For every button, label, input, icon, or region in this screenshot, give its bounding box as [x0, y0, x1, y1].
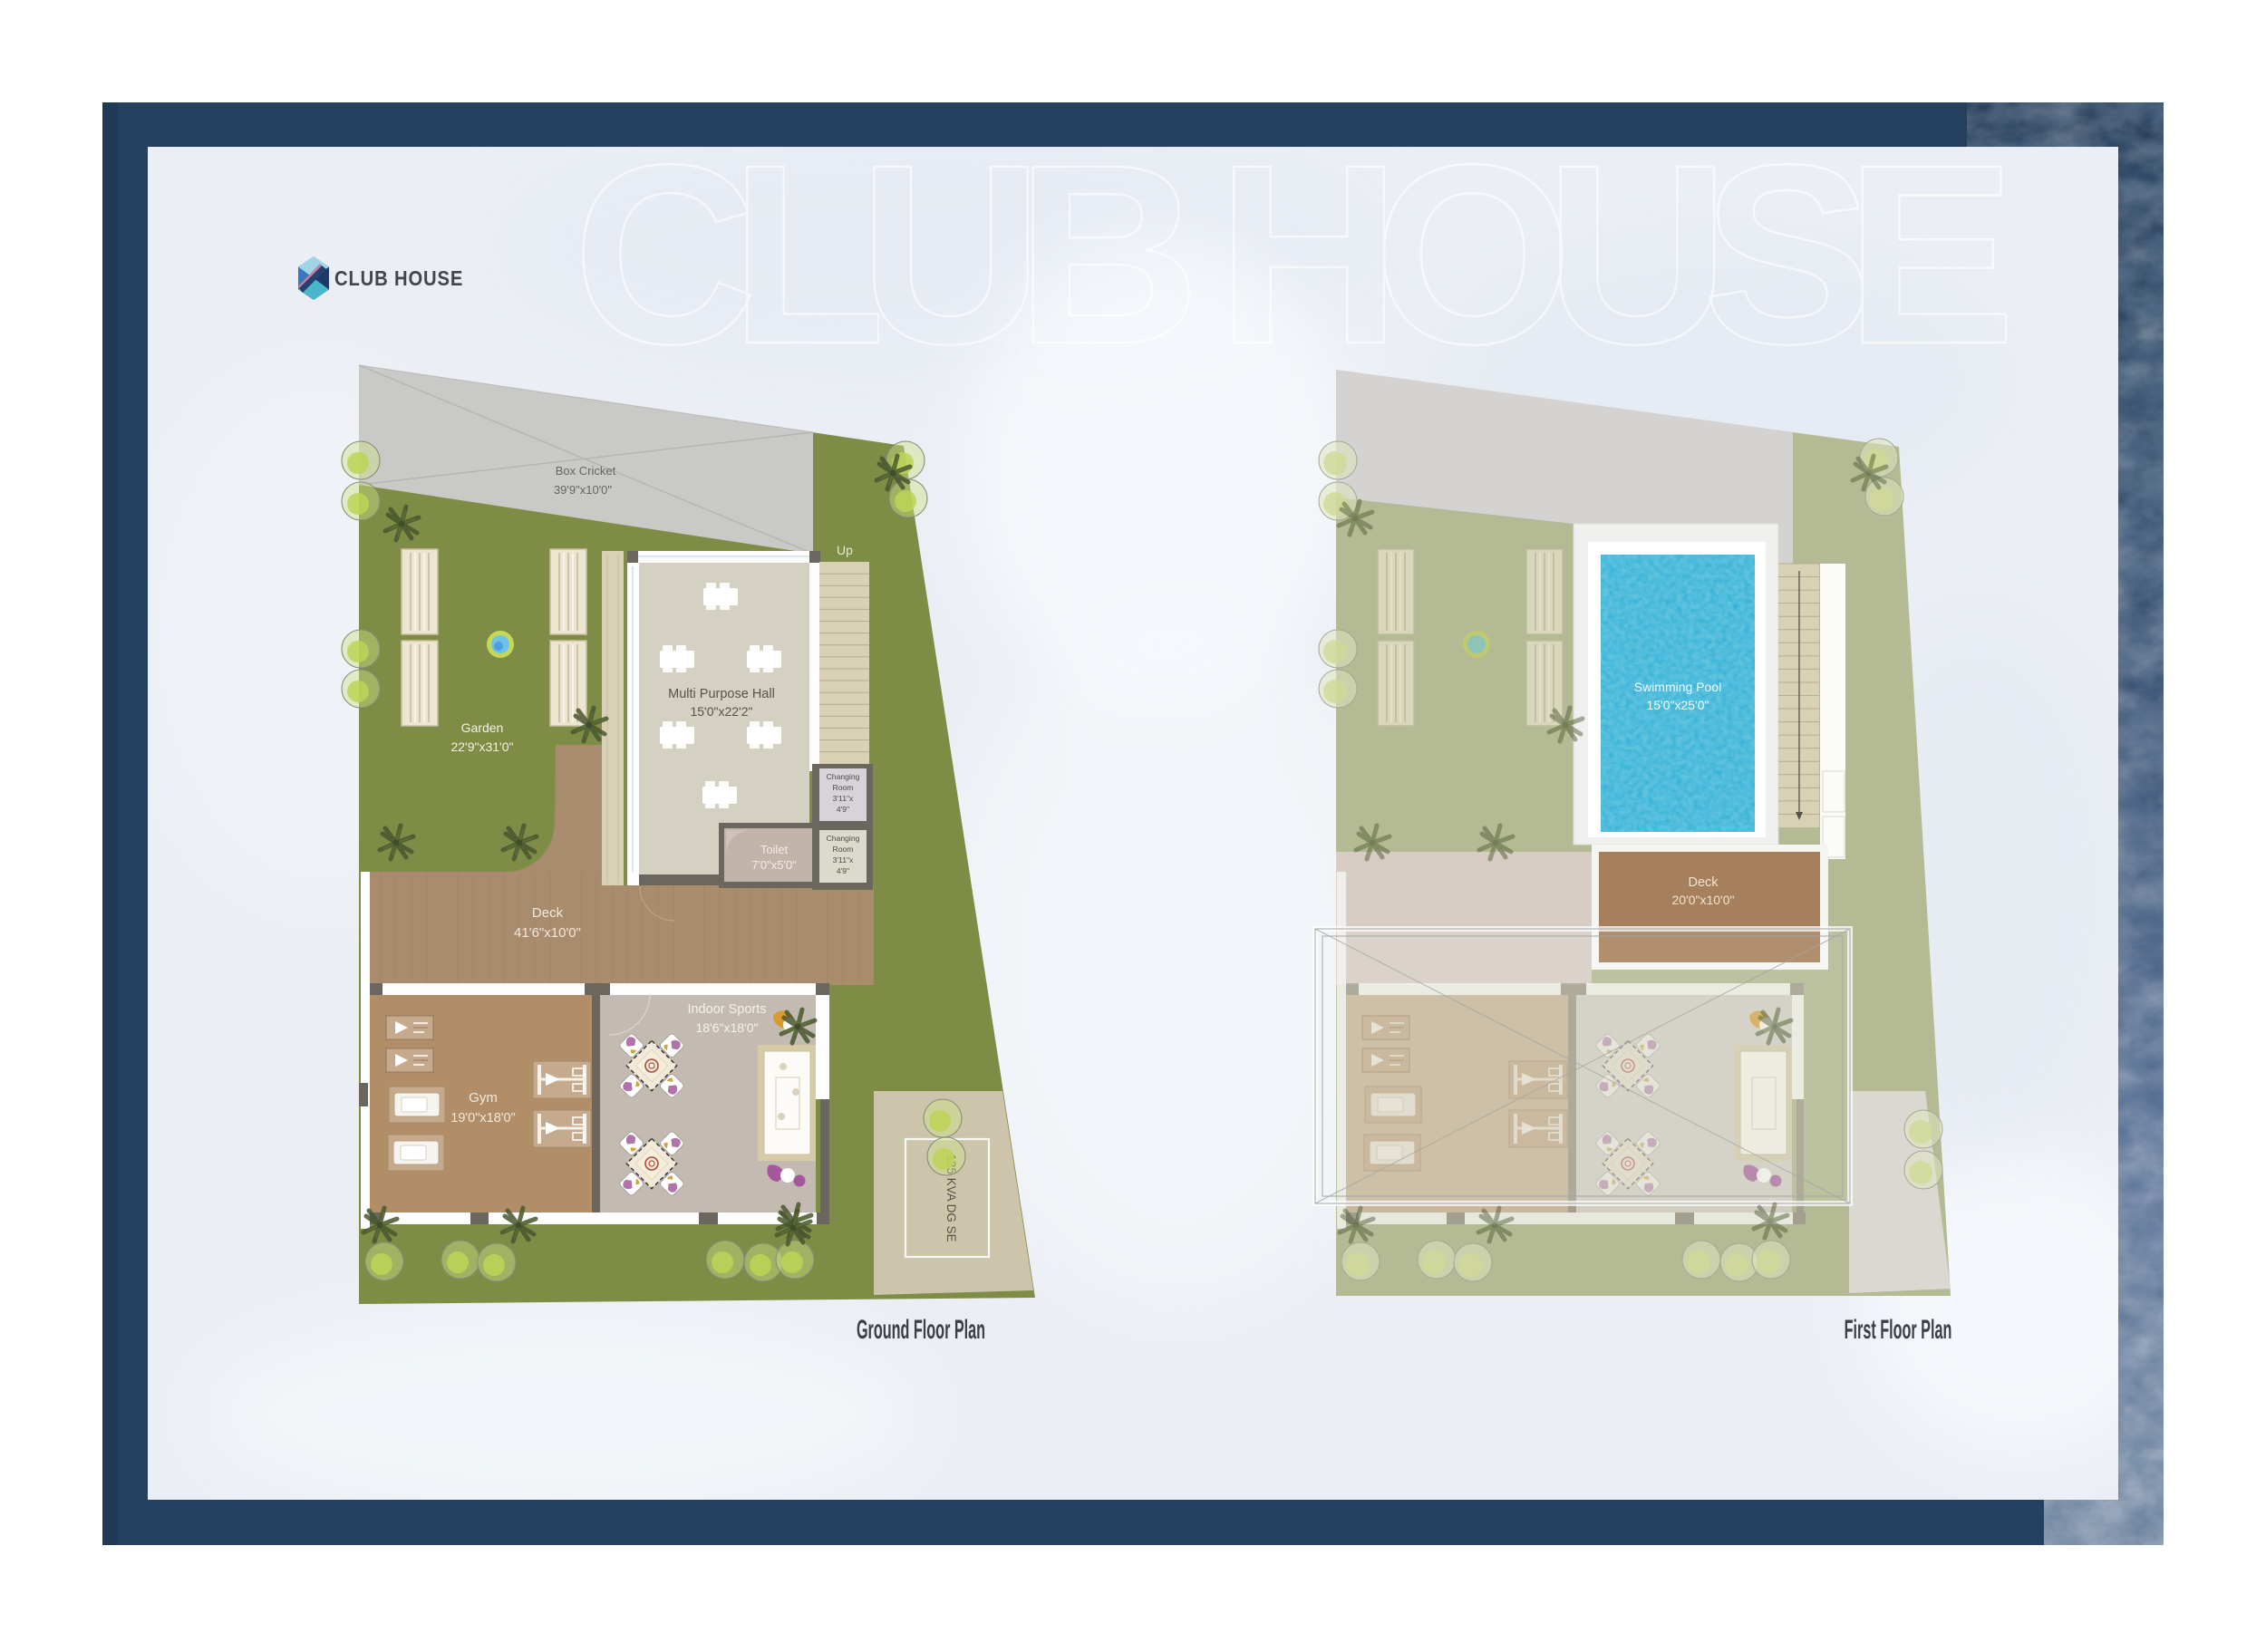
svg-text:15'0"x25'0": 15'0"x25'0": [1646, 698, 1709, 712]
svg-text:3'11"x: 3'11"x: [833, 855, 854, 865]
svg-text:Gym: Gym: [469, 1090, 498, 1106]
svg-text:Indoor Sports: Indoor Sports: [687, 1002, 766, 1017]
svg-text:Swimming Pool: Swimming Pool: [1634, 680, 1721, 694]
svg-text:Garden: Garden: [461, 720, 504, 735]
svg-text:Deck: Deck: [532, 905, 564, 921]
svg-text:Room: Room: [833, 845, 854, 854]
svg-text:Changing: Changing: [827, 834, 860, 843]
svg-text:19'0"x18'0": 19'0"x18'0": [450, 1111, 515, 1125]
svg-text:18'6"x18'0": 18'6"x18'0": [695, 1020, 758, 1035]
svg-text:Changing: Changing: [827, 772, 860, 781]
svg-text:Toilet: Toilet: [760, 843, 789, 856]
svg-text:Room: Room: [833, 783, 854, 792]
svg-text:Up: Up: [837, 543, 853, 557]
svg-text:Ground Floor Plan: Ground Floor Plan: [857, 1315, 985, 1346]
svg-text:First Floor Plan: First Floor Plan: [1845, 1315, 1952, 1346]
svg-text:Deck: Deck: [1688, 875, 1719, 890]
svg-text:15'0"x22'2": 15'0"x22'2": [690, 704, 752, 719]
svg-text:3'11"x: 3'11"x: [833, 794, 854, 803]
svg-text:CLUB HOUSE: CLUB HOUSE: [334, 266, 463, 291]
svg-text:7'0"x5'0": 7'0"x5'0": [751, 858, 797, 872]
svg-text:Multi Purpose Hall: Multi Purpose Hall: [668, 687, 775, 701]
svg-text:CLUB HOUSE: CLUB HOUSE: [573, 111, 2034, 397]
svg-text:Box Cricket: Box Cricket: [556, 464, 616, 478]
svg-text:4'9": 4'9": [837, 866, 849, 875]
svg-text:20'0"x10'0": 20'0"x10'0": [1671, 893, 1734, 907]
svg-text:22'9"x31'0": 22'9"x31'0": [450, 739, 513, 754]
svg-text:41'6"x10'0": 41'6"x10'0": [514, 925, 581, 941]
svg-text:4'9": 4'9": [837, 805, 849, 814]
svg-text:39'9"x10'0": 39'9"x10'0": [554, 483, 612, 497]
